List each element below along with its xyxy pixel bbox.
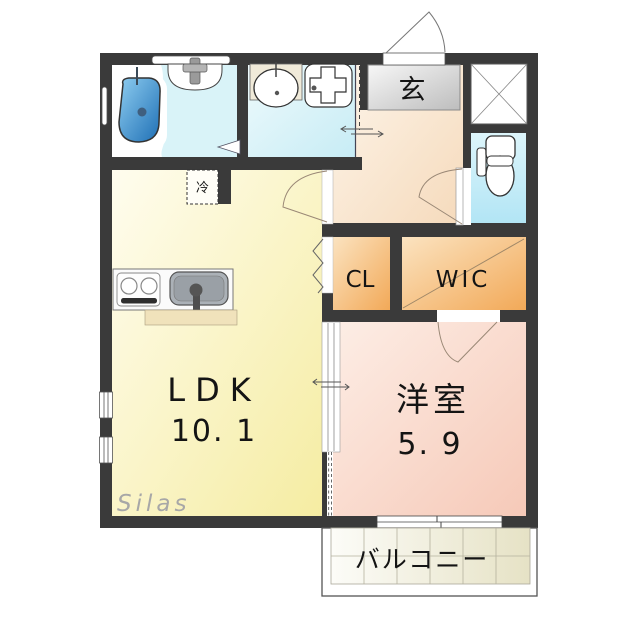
entrance-label: 玄 — [399, 75, 426, 106]
closet-door-opening — [322, 237, 333, 293]
western-room-label: 洋室 — [396, 380, 470, 419]
floor-plan: 冷 バルコニー 玄 CL WIC LDK 10. 1 洋室 5. — [0, 0, 640, 640]
shoe-storage — [471, 64, 527, 124]
balcony-label: バルコニー — [355, 545, 490, 574]
ldk-door-opening — [322, 170, 333, 224]
ldk-floor — [112, 157, 333, 516]
refrigerator-space: 冷 — [187, 170, 218, 204]
bathtub — [113, 67, 167, 149]
closet-label: CL — [346, 267, 375, 293]
bath-towel-bar — [102, 87, 107, 125]
toilet-door-leaf — [456, 168, 463, 225]
balcony: バルコニー — [322, 528, 537, 596]
walk-in-closet-label: WIC — [436, 267, 491, 293]
balcony-window — [377, 516, 502, 528]
washbasin — [250, 62, 302, 107]
kitchen-counter — [113, 269, 233, 313]
entrance-door-sill — [383, 53, 445, 65]
ldk-area: 10. 1 — [171, 414, 257, 449]
western-room-area: 5. 9 — [397, 427, 462, 462]
entrance-door-swing — [386, 12, 445, 53]
ldk-label: LDK — [167, 371, 260, 409]
watermark: Silas — [117, 491, 190, 517]
western-room-door-opening — [437, 310, 500, 322]
floor-plan-canvas: 冷 バルコニー 玄 CL WIC LDK 10. 1 洋室 5. — [0, 0, 640, 640]
washing-machine-pan — [305, 64, 352, 107]
ldk-western-wall-dashed — [327, 452, 333, 516]
refrigerator-label: 冷 — [196, 181, 209, 196]
kitchen-cabinet — [145, 310, 237, 325]
toilet-door-opening — [463, 168, 471, 225]
